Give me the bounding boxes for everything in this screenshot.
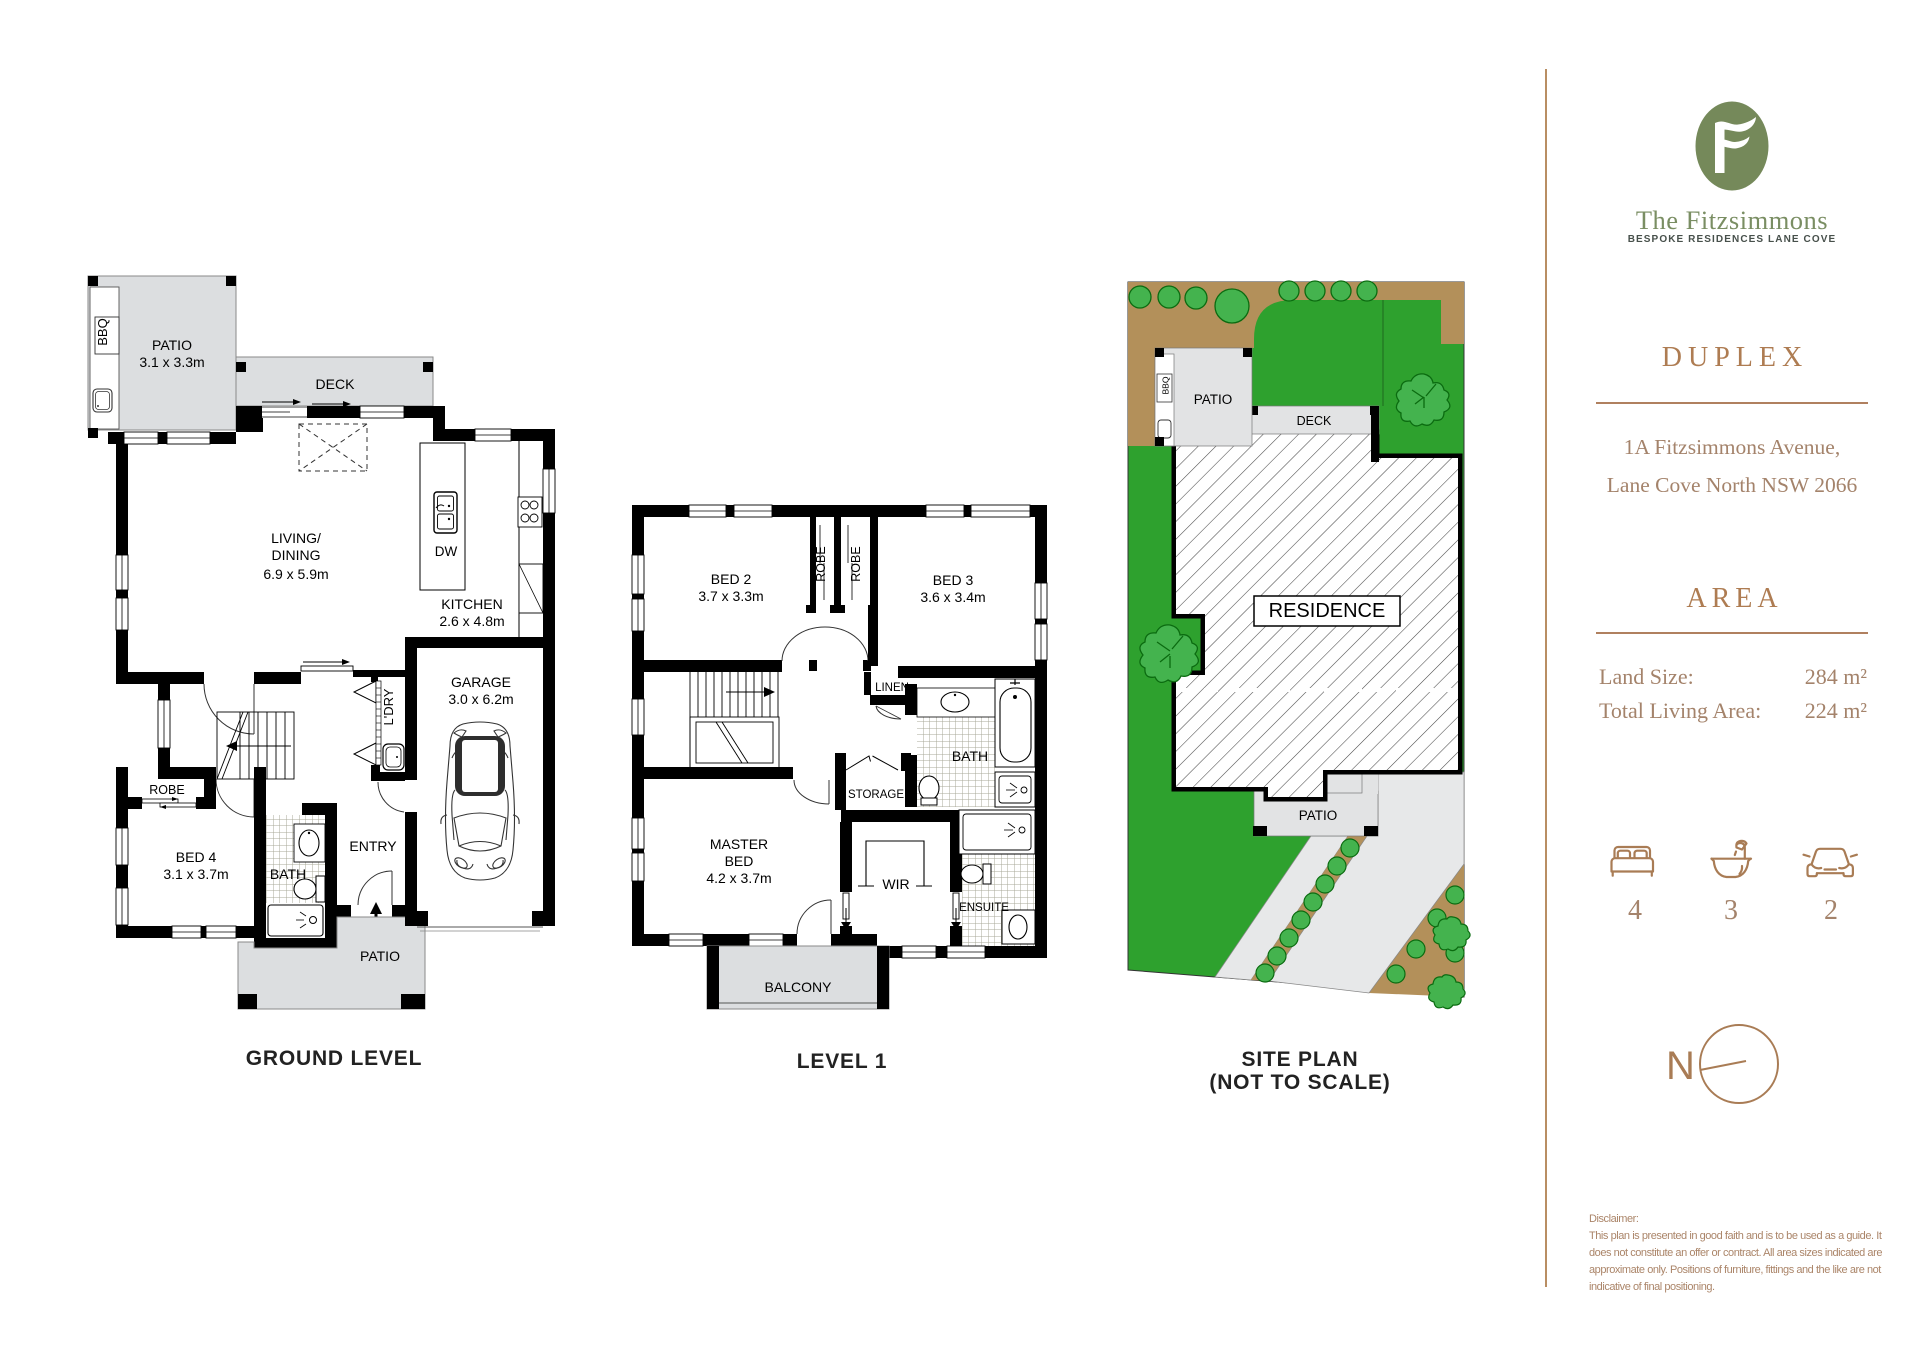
svg-text:3.6 x 3.4m: 3.6 x 3.4m — [920, 589, 985, 605]
svg-text:WIR: WIR — [882, 876, 909, 892]
svg-text:3.7 x 3.3m: 3.7 x 3.3m — [698, 588, 763, 604]
svg-text:L'DRY: L'DRY — [381, 688, 396, 725]
svg-text:ROBE: ROBE — [849, 546, 863, 581]
svg-text:BALCONY: BALCONY — [765, 979, 833, 995]
svg-text:DINING: DINING — [272, 547, 321, 563]
svg-text:BATH: BATH — [952, 748, 988, 764]
svg-text:PATIO: PATIO — [1194, 392, 1233, 407]
svg-text:GARAGE: GARAGE — [451, 674, 511, 690]
svg-text:4.2 x 3.7m: 4.2 x 3.7m — [706, 870, 771, 886]
svg-text:ROBE: ROBE — [149, 783, 184, 797]
svg-text:BBQ: BBQ — [1161, 376, 1171, 394]
svg-text:PATIO: PATIO — [360, 948, 400, 964]
svg-text:6.9 x 5.9m: 6.9 x 5.9m — [263, 566, 328, 582]
svg-text:ENTRY: ENTRY — [349, 838, 397, 854]
svg-text:KITCHEN: KITCHEN — [441, 596, 502, 612]
svg-text:DECK: DECK — [316, 376, 356, 392]
svg-text:3.1 x 3.7m: 3.1 x 3.7m — [163, 866, 228, 882]
svg-text:N: N — [1666, 1044, 1695, 1088]
svg-text:LIVING/: LIVING/ — [271, 530, 321, 546]
svg-text:ENSUITE: ENSUITE — [959, 902, 1009, 914]
svg-text:BED: BED — [725, 853, 754, 869]
svg-text:BED 4: BED 4 — [176, 849, 217, 865]
svg-text:LINEN: LINEN — [875, 682, 909, 694]
svg-text:ROBE: ROBE — [814, 546, 828, 581]
svg-text:2.6 x 4.8m: 2.6 x 4.8m — [439, 613, 504, 629]
svg-text:BED 3: BED 3 — [933, 572, 974, 588]
svg-text:3.0 x 6.2m: 3.0 x 6.2m — [448, 691, 513, 707]
svg-text:BED 2: BED 2 — [711, 571, 752, 587]
svg-text:BATH: BATH — [270, 866, 306, 882]
svg-text:MASTER: MASTER — [710, 836, 768, 852]
svg-text:3.1 x 3.3m: 3.1 x 3.3m — [139, 354, 204, 370]
svg-text:DECK: DECK — [1297, 414, 1332, 428]
svg-text:BBQ: BBQ — [95, 318, 110, 345]
svg-text:STORAGE: STORAGE — [848, 789, 904, 801]
svg-text:PATIO: PATIO — [1299, 808, 1338, 823]
svg-text:PATIO: PATIO — [152, 337, 192, 353]
svg-text:RESIDENCE: RESIDENCE — [1269, 600, 1386, 622]
svg-text:DW: DW — [435, 544, 458, 559]
